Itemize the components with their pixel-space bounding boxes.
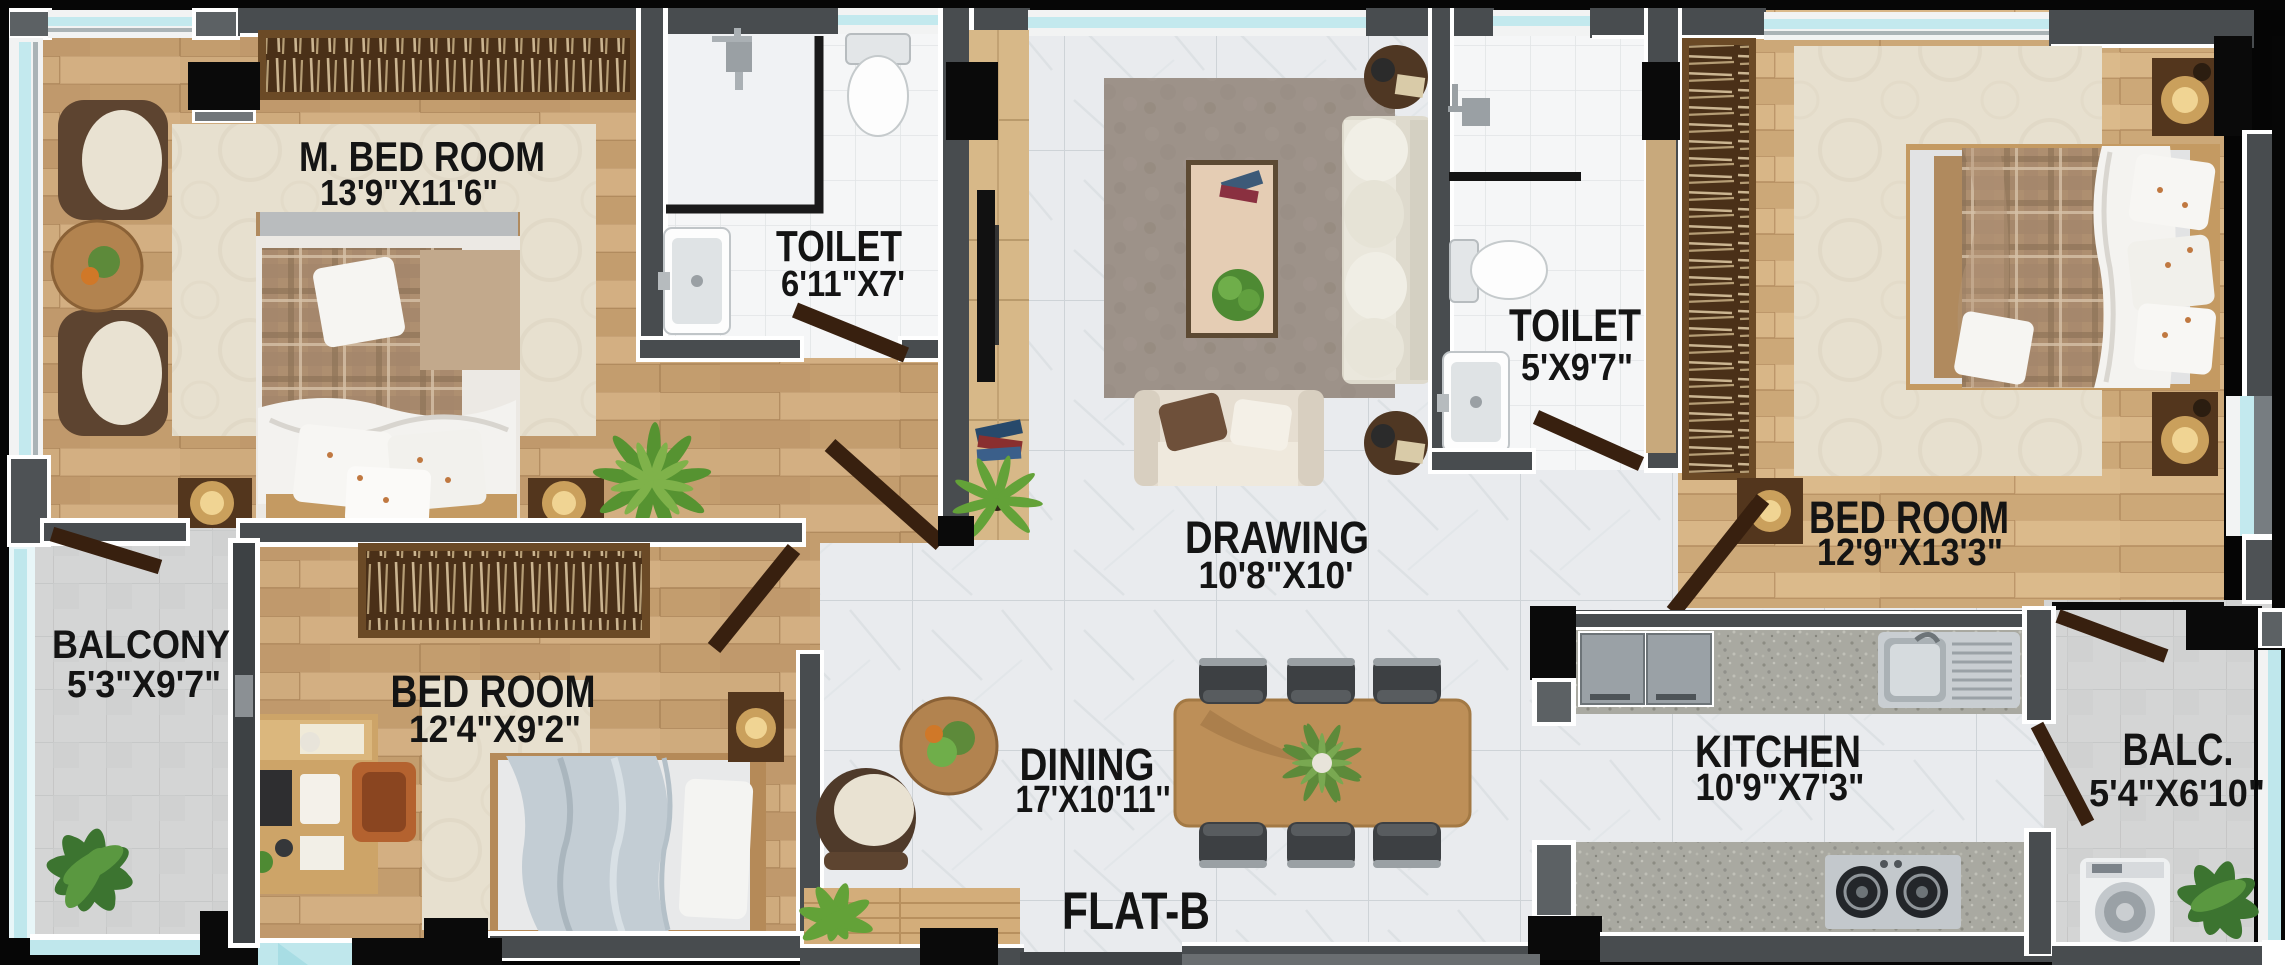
svg-text:10'8"X10': 10'8"X10' <box>1199 555 1354 597</box>
svg-text:10'9"X7'3": 10'9"X7'3" <box>1696 767 1865 809</box>
svg-text:5'3"X9'7": 5'3"X9'7" <box>67 664 221 706</box>
svg-text:13'9"X11'6": 13'9"X11'6" <box>320 172 498 213</box>
svg-text:BALC.: BALC. <box>2123 724 2234 775</box>
svg-text:6'11"X7': 6'11"X7' <box>781 263 905 304</box>
svg-text:17'X10'11'': 17'X10'11'' <box>1016 779 1171 821</box>
svg-text:BALCONY: BALCONY <box>52 623 230 667</box>
svg-text:5'X9'7": 5'X9'7" <box>1521 347 1633 389</box>
svg-text:12'4"X9'2": 12'4"X9'2" <box>409 709 581 751</box>
svg-text:FLAT-B: FLAT-B <box>1062 882 1210 941</box>
svg-text:5'4"X6'10": 5'4"X6'10" <box>2089 773 2265 815</box>
svg-text:12'9"X13'3": 12'9"X13'3" <box>1817 532 2003 574</box>
svg-text:TOILET: TOILET <box>1509 300 1641 351</box>
